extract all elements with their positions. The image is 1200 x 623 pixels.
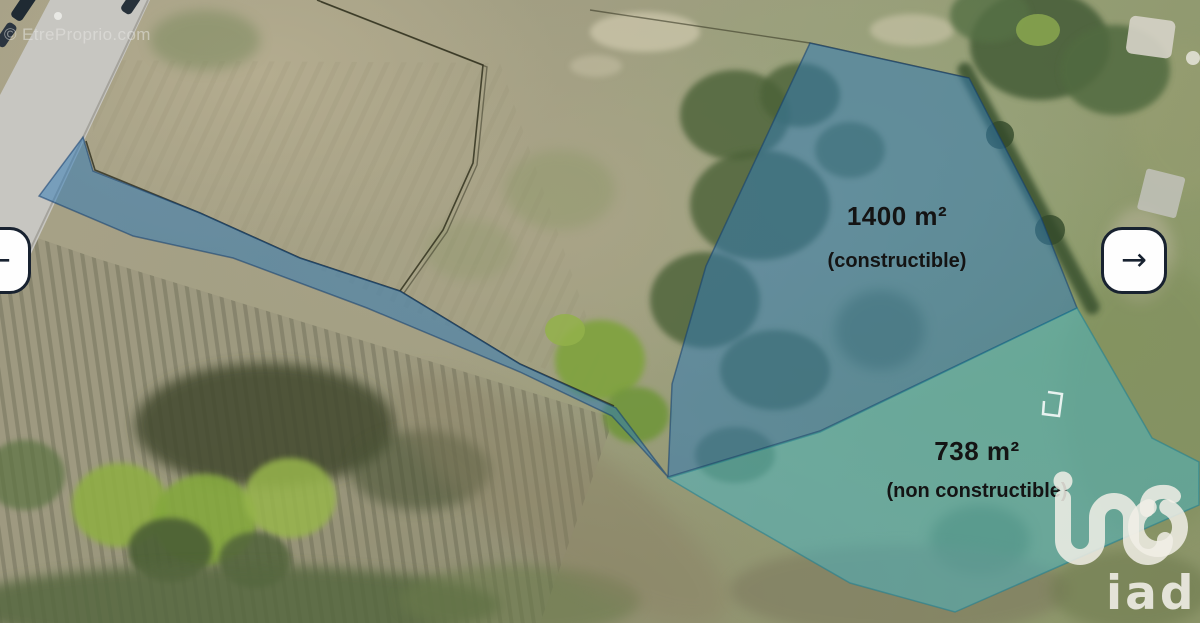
- aerial-photo: 1400 m² (constructible) 738 m² (non cons…: [0, 0, 1200, 623]
- arrow-right-icon: →: [1121, 245, 1147, 276]
- listing-photo-viewer: 1400 m² (constructible) 738 m² (non cons…: [0, 0, 1200, 623]
- previous-photo-button[interactable]: ←: [0, 227, 31, 294]
- parked-car: [10, 0, 40, 22]
- garden-structure: [1125, 15, 1176, 59]
- parked-car: [0, 21, 18, 49]
- aerial-paint-layer: [0, 0, 1200, 623]
- arrow-left-icon: ←: [0, 245, 11, 276]
- next-photo-button[interactable]: →: [1101, 227, 1167, 294]
